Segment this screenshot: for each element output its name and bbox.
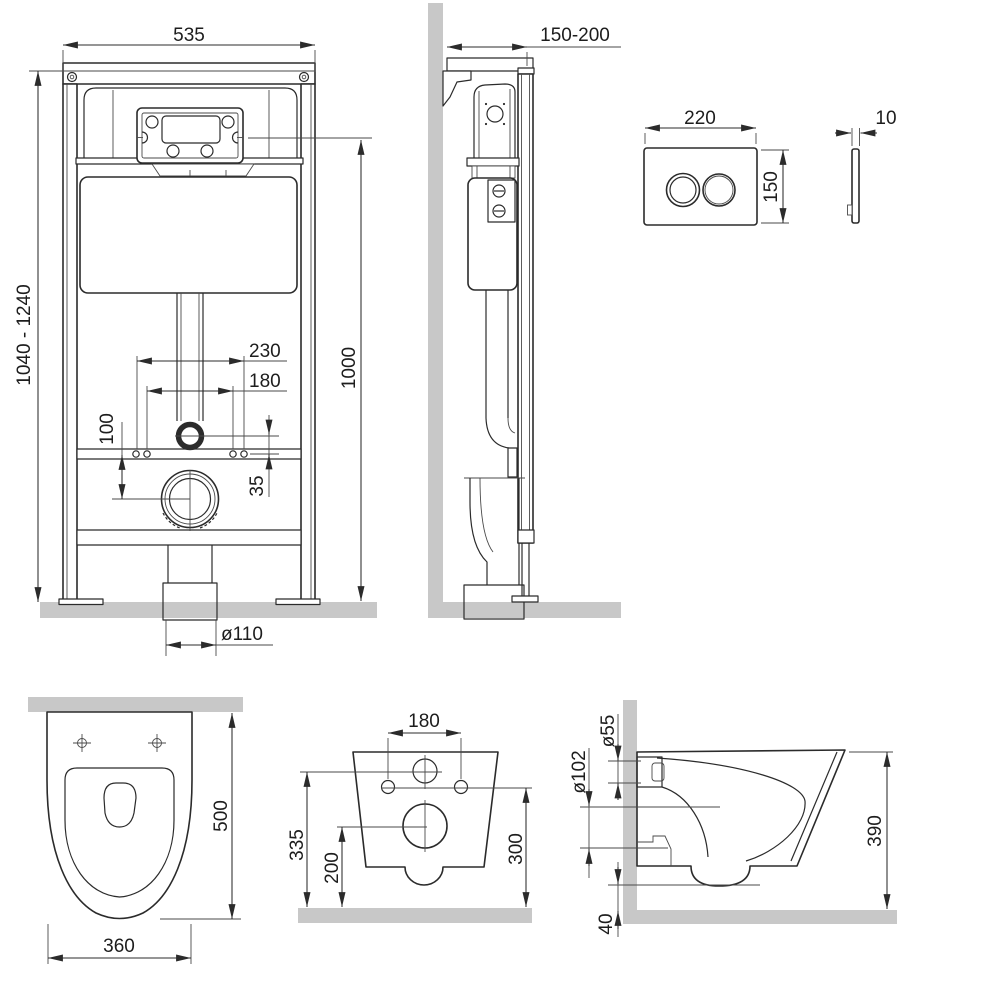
dim-label: 230 (249, 341, 281, 362)
dim-label: 180 (249, 371, 281, 392)
dim-label: 335 (287, 829, 308, 861)
dim-drain-diameter-side: ø102 (569, 748, 590, 878)
dim-label: 10 (875, 108, 896, 129)
view-frame-front: 535 1040 - 1240 1000 230 180 (14, 25, 377, 656)
dim-label: 200 (322, 852, 343, 884)
cistern-inlet-funnel (474, 84, 515, 158)
view-frame-side: 150-200 (428, 3, 621, 619)
cistern-moulding (152, 164, 254, 176)
dim-inner-bolt-spacing: 180 (147, 371, 287, 449)
drain-outlet (112, 470, 219, 531)
right-foot (276, 599, 320, 605)
dim-label: 40 (596, 913, 617, 934)
access-panel (137, 108, 243, 163)
dim-label: 35 (247, 475, 268, 496)
dim-label: 180 (408, 711, 440, 732)
flush-plate (644, 148, 757, 225)
wall-surface (623, 700, 637, 910)
dim-label: 150-200 (540, 25, 610, 46)
wall-surface (28, 697, 243, 712)
floor-surface (623, 910, 897, 924)
dim-bowl-height: 390 (849, 752, 893, 909)
floor-surface (298, 908, 532, 923)
dim-label: 535 (173, 25, 205, 46)
technical-drawing: 535 1040 - 1240 1000 230 180 (0, 0, 1000, 1000)
flush-plate-side (852, 149, 859, 223)
dim-label: 220 (684, 108, 716, 129)
view-flush-plate: 220 150 10 (644, 108, 897, 225)
dim-drain-height: 200 (322, 827, 343, 907)
dim-bolt-height: 300 (506, 788, 527, 907)
dim-plate-thickness: 10 (835, 108, 897, 146)
dim-label: 150 (761, 171, 782, 203)
cistern-side (468, 178, 517, 290)
dim-inlet-diameter: ø55 (598, 714, 619, 800)
dim-label: ø110 (221, 624, 263, 645)
view-bowl-rear: 180 335 200 300 (287, 711, 532, 923)
view-bowl-side: ø55 ø102 390 40 (569, 700, 897, 937)
dim-label: 500 (211, 800, 232, 832)
left-rail (63, 84, 77, 600)
wall-surface (428, 3, 443, 618)
view-bowl-top: 500 360 (28, 697, 243, 964)
left-foot (59, 599, 103, 605)
bottom-rail (77, 530, 301, 545)
dim-plate-height: 150 (761, 150, 789, 223)
dim-floor-clearance: 40 (596, 862, 618, 937)
bowl-outline-top (47, 712, 192, 919)
wall-bracket (443, 71, 471, 106)
frame-rail-side (518, 74, 533, 543)
dim-label: ø102 (569, 750, 590, 793)
dim-frame-height-range: 1040 - 1240 (14, 71, 63, 602)
dim-drain-diameter: ø110 (166, 620, 273, 656)
cistern-tank (80, 177, 297, 293)
dim-label: ø55 (598, 715, 619, 748)
dim-label: 360 (103, 936, 135, 957)
dim-label: 1040 - 1240 (14, 284, 35, 385)
dim-plate-width: 220 (645, 108, 756, 144)
foot-side (512, 596, 538, 602)
fixing-hole (455, 781, 468, 794)
dim-label: 300 (506, 833, 527, 865)
dim-label: 100 (97, 413, 118, 445)
dim-outer-bolt-spacing: 230 (137, 341, 287, 449)
installation-drawing-page: 535 1040 - 1240 1000 230 180 (0, 0, 1000, 1000)
dim-bowl-width: 360 (48, 924, 191, 964)
floor-surface (443, 602, 621, 618)
dim-inlet-height: 335 (287, 772, 308, 907)
top-rail (63, 63, 315, 84)
dim-label: 390 (865, 815, 886, 847)
dim-label: 1000 (339, 347, 360, 389)
bowl-outline-side (637, 750, 845, 886)
fixing-hole (382, 781, 395, 794)
